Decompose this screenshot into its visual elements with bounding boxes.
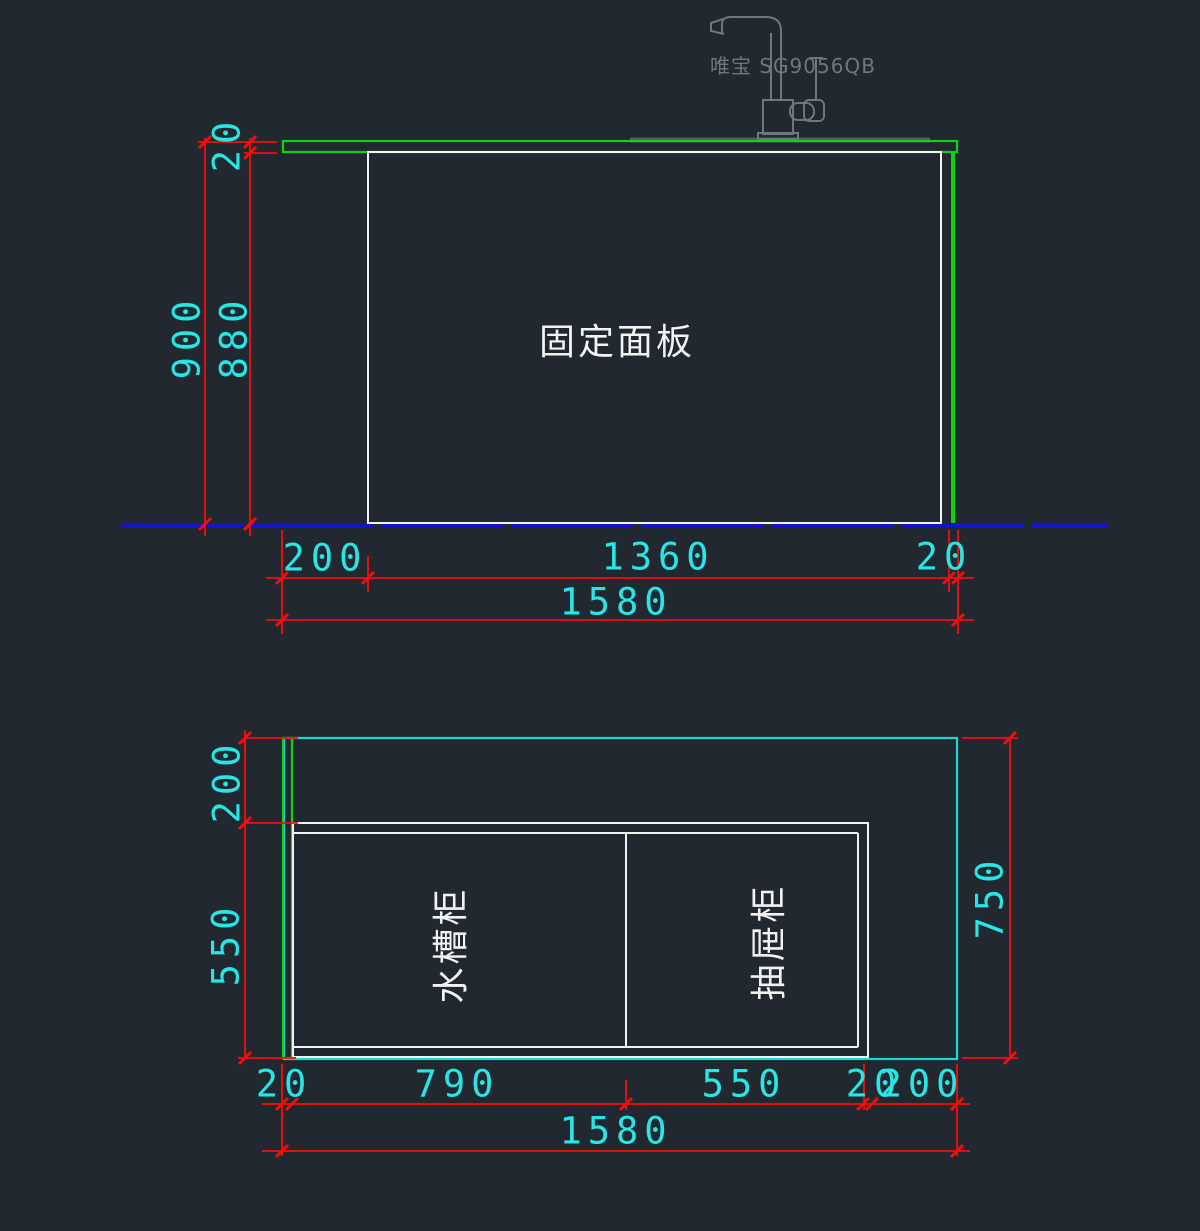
faucet-base-plate xyxy=(758,133,798,139)
fixed-panel-label: 固定面板 xyxy=(539,325,695,361)
dim-elevation-left-offset: 200 xyxy=(283,540,368,577)
dim-elevation-panel-width: 1360 xyxy=(601,539,714,576)
dim-plan-right-offset: 200 xyxy=(880,1066,965,1103)
dim-plan-sink-width: 790 xyxy=(415,1066,500,1103)
faucet-body xyxy=(763,100,793,134)
dim-plan-total-depth: 750 xyxy=(972,855,1009,940)
dim-panel-height: 880 xyxy=(216,295,253,380)
dim-plan-drawer-width: 550 xyxy=(702,1066,787,1103)
dim-elevation-end-thickness: 20 xyxy=(916,539,973,576)
cad-drawing-area: 唯宝 SG9056QB 固定面板 900 880 20 200 1360 20 … xyxy=(0,0,1200,1231)
drawer-cabinet-label: 抽屉柜 xyxy=(752,883,788,1000)
dim-plan-cabinet-depth: 550 xyxy=(208,902,245,987)
dim-elevation-total-width: 1580 xyxy=(559,584,672,621)
countertop-outline xyxy=(283,141,957,152)
dim-counter-thickness: 20 xyxy=(209,116,246,173)
dim-total-height: 900 xyxy=(169,295,206,380)
dim-plan-total-width: 1580 xyxy=(559,1113,672,1150)
plan-outline xyxy=(284,738,957,1059)
sink-cabinet-label: 水槽柜 xyxy=(434,886,470,1003)
faucet-model-label: 唯宝 SG9056QB xyxy=(710,50,876,79)
dim-plan-back-thickness: 20 xyxy=(256,1066,313,1103)
dim-plan-top-depth: 200 xyxy=(209,739,246,824)
